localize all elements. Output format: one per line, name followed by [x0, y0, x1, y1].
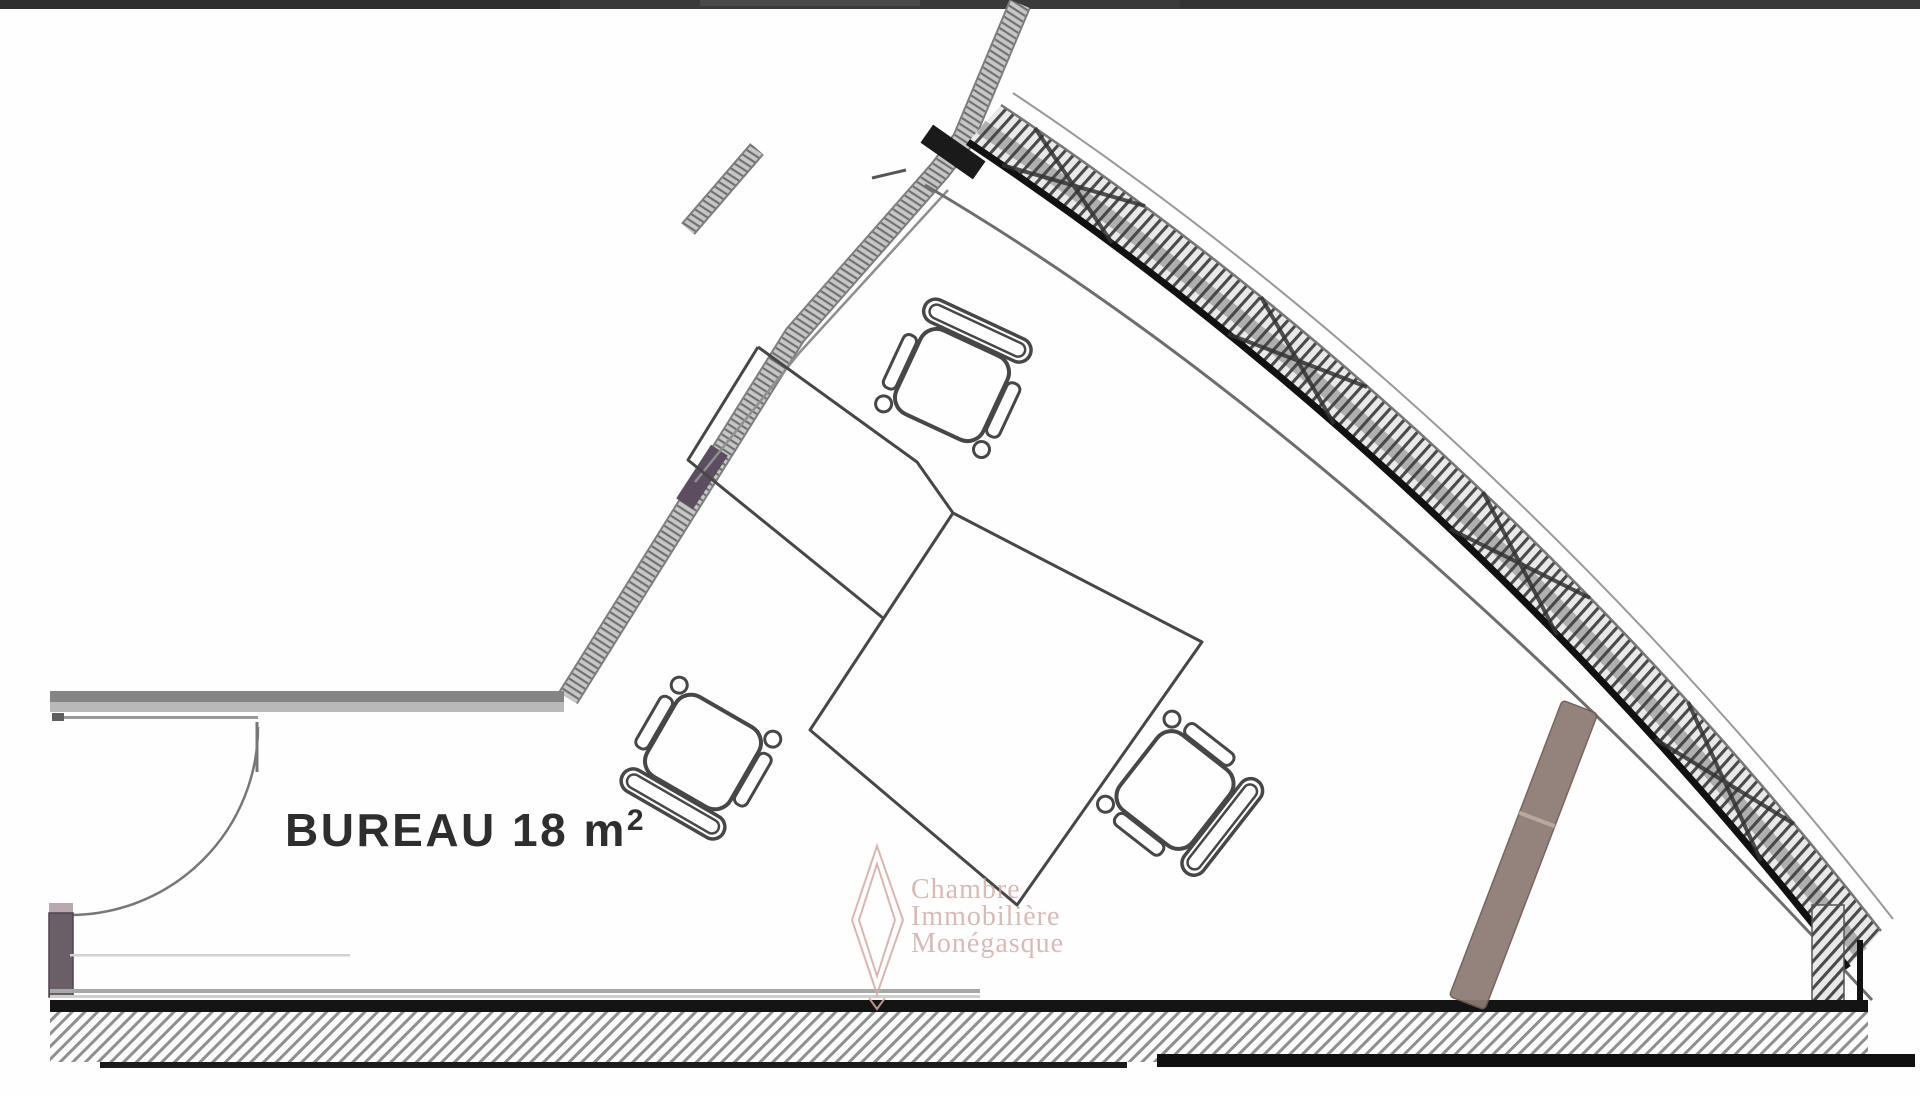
office-chair [1093, 706, 1271, 884]
watermark: Chambre Immobilière Monégasque [852, 846, 1064, 1009]
door-head-line [52, 716, 258, 719]
room-label-main: BUREAU 18 m [285, 804, 627, 856]
top-edge-bar-segment [1180, 0, 1480, 8]
floor-plan-drawing: BUREAU 18 m2 Chambre Immobilière Monégas… [0, 0, 1920, 1095]
bottom-wall-outer-bar [1157, 1054, 1915, 1067]
diagonal-beam [1449, 700, 1598, 1010]
facade-base-column [1812, 905, 1844, 1003]
door-leaf [49, 913, 73, 997]
curtain-wall-facade [925, 93, 1893, 1003]
wall-end-tick [52, 713, 64, 721]
left-wall-hatch [568, 4, 1020, 698]
watermark-text: Chambre Immobilière Monégasque [911, 874, 1064, 959]
top-edge-strip [0, 0, 1920, 9]
bottom-wall-inner-line-1 [50, 989, 980, 993]
top-edge-bar-dark-segment [0, 0, 560, 9]
door-swing-arc [70, 727, 258, 915]
floor-plan-page: BUREAU 18 m2 Chambre Immobilière Monégas… [0, 0, 1920, 1095]
entry-wall-bottom [50, 702, 564, 712]
bottom-wall-inner-line-2 [50, 995, 980, 998]
diagonal-beam-bar [1449, 700, 1598, 1010]
facade-shadow [981, 127, 1861, 953]
facade-inner-line [968, 142, 1848, 968]
bottom-wall-main-line [50, 1000, 1868, 1012]
room-label-superscript: 2 [627, 804, 646, 837]
desk-divider [688, 347, 883, 618]
threshold-line [70, 954, 350, 957]
office-chair [871, 293, 1040, 461]
double-diamond-icon [852, 846, 903, 1009]
door-hinge-cap [49, 903, 73, 913]
wall-stub-hatch [688, 149, 757, 229]
office-chairs [612, 293, 1272, 885]
bottom-wall-outer-line [100, 1062, 1127, 1068]
bottom-wall [50, 989, 1915, 1068]
facade-sill-line [925, 185, 1872, 1000]
watermark-line-3: Monégasque [911, 928, 1064, 959]
left-wall [568, 4, 1020, 698]
sill-tick [872, 170, 906, 178]
room-label: BUREAU 18 m2 [285, 804, 646, 856]
top-edge-bar-light-segment [700, 0, 920, 6]
entry-wall-top [50, 691, 564, 702]
